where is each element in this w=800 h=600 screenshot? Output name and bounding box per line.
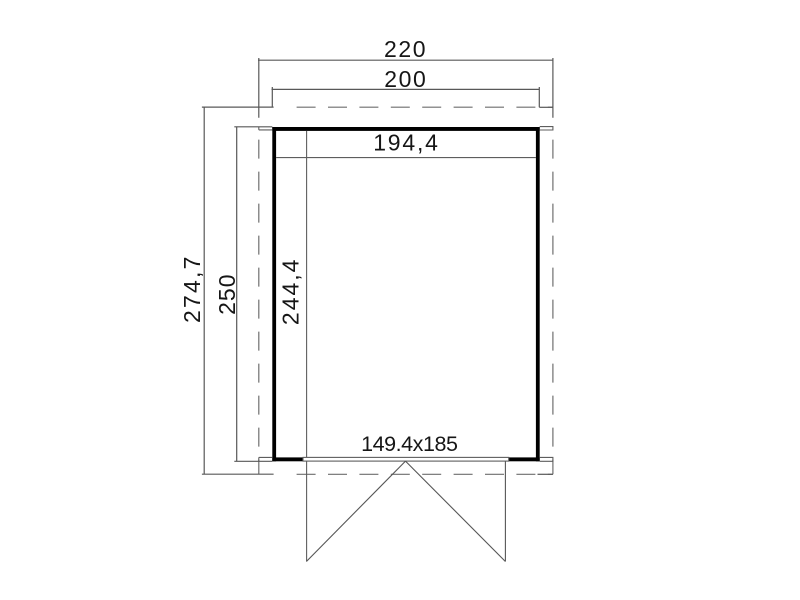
svg-text:220: 220 bbox=[384, 36, 427, 62]
svg-text:250: 250 bbox=[214, 274, 240, 315]
svg-text:194,4: 194,4 bbox=[373, 130, 440, 156]
svg-text:274,7: 274,7 bbox=[179, 254, 205, 323]
svg-text:200: 200 bbox=[384, 66, 427, 92]
svg-text:149.4x185: 149.4x185 bbox=[361, 432, 458, 456]
svg-text:244,4: 244,4 bbox=[278, 258, 304, 326]
